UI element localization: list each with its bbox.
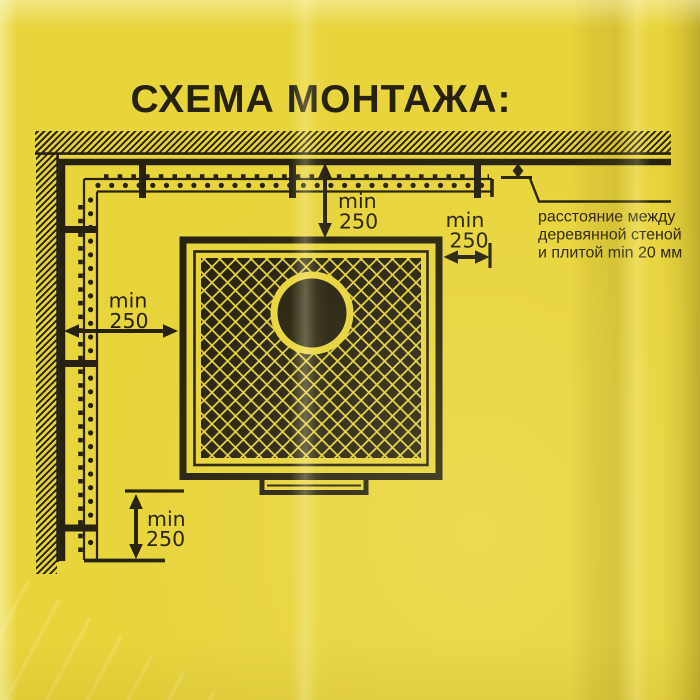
wall-hatch-top — [35, 131, 671, 153]
dim-arrow-top — [318, 163, 332, 238]
stove-plate — [183, 240, 439, 493]
dim-value-right: 250 — [449, 229, 488, 253]
dim-value-top: 250 — [339, 210, 378, 234]
note-line-2: деревянной стеной — [538, 227, 682, 244]
burner-hole — [278, 279, 347, 348]
wall-hatch-left — [36, 131, 57, 574]
page-title: СХЕМА МОНТАЖА: — [130, 78, 511, 121]
packaging-photo: СХЕМА МОНТАЖА: min 250 min 250 min 250 m… — [0, 0, 700, 700]
dim-value-bottom: 250 — [146, 527, 185, 551]
note-leader-line — [530, 179, 671, 202]
dim-value-left: 250 — [109, 309, 148, 333]
protective-sheet-line-left — [81, 179, 98, 560]
note-line-1: расстояние между — [538, 209, 675, 226]
note-line-3: и плитой min 20 мм — [538, 245, 682, 262]
wall-gap-annotation — [501, 164, 671, 202]
installation-diagram: СХЕМА МОНТАЖА: min 250 min 250 min 250 m… — [0, 0, 700, 700]
